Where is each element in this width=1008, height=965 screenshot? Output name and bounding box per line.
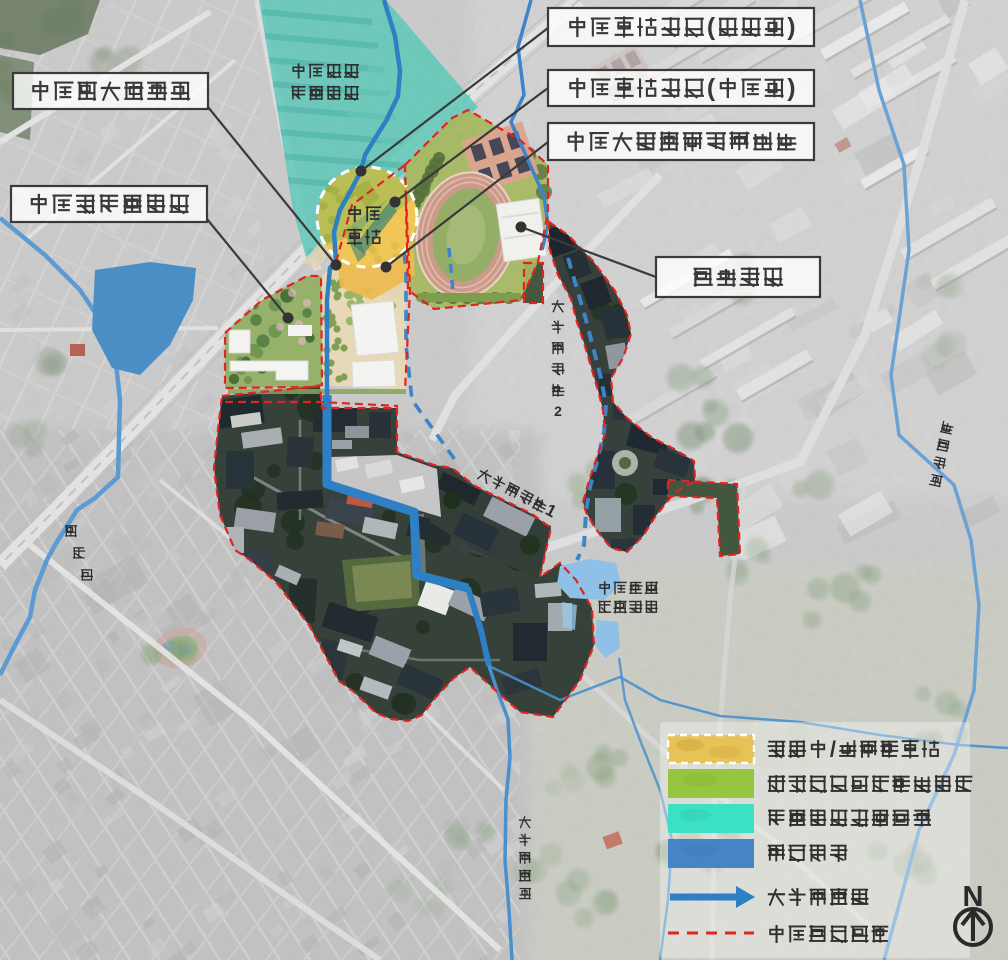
svg-text:(: ( <box>707 13 716 41</box>
svg-text:/: / <box>830 737 836 762</box>
svg-text:): ) <box>787 13 795 41</box>
svg-text:(: ( <box>707 74 716 102</box>
svg-text:2: 2 <box>554 403 562 419</box>
svg-text:): ) <box>787 74 795 102</box>
